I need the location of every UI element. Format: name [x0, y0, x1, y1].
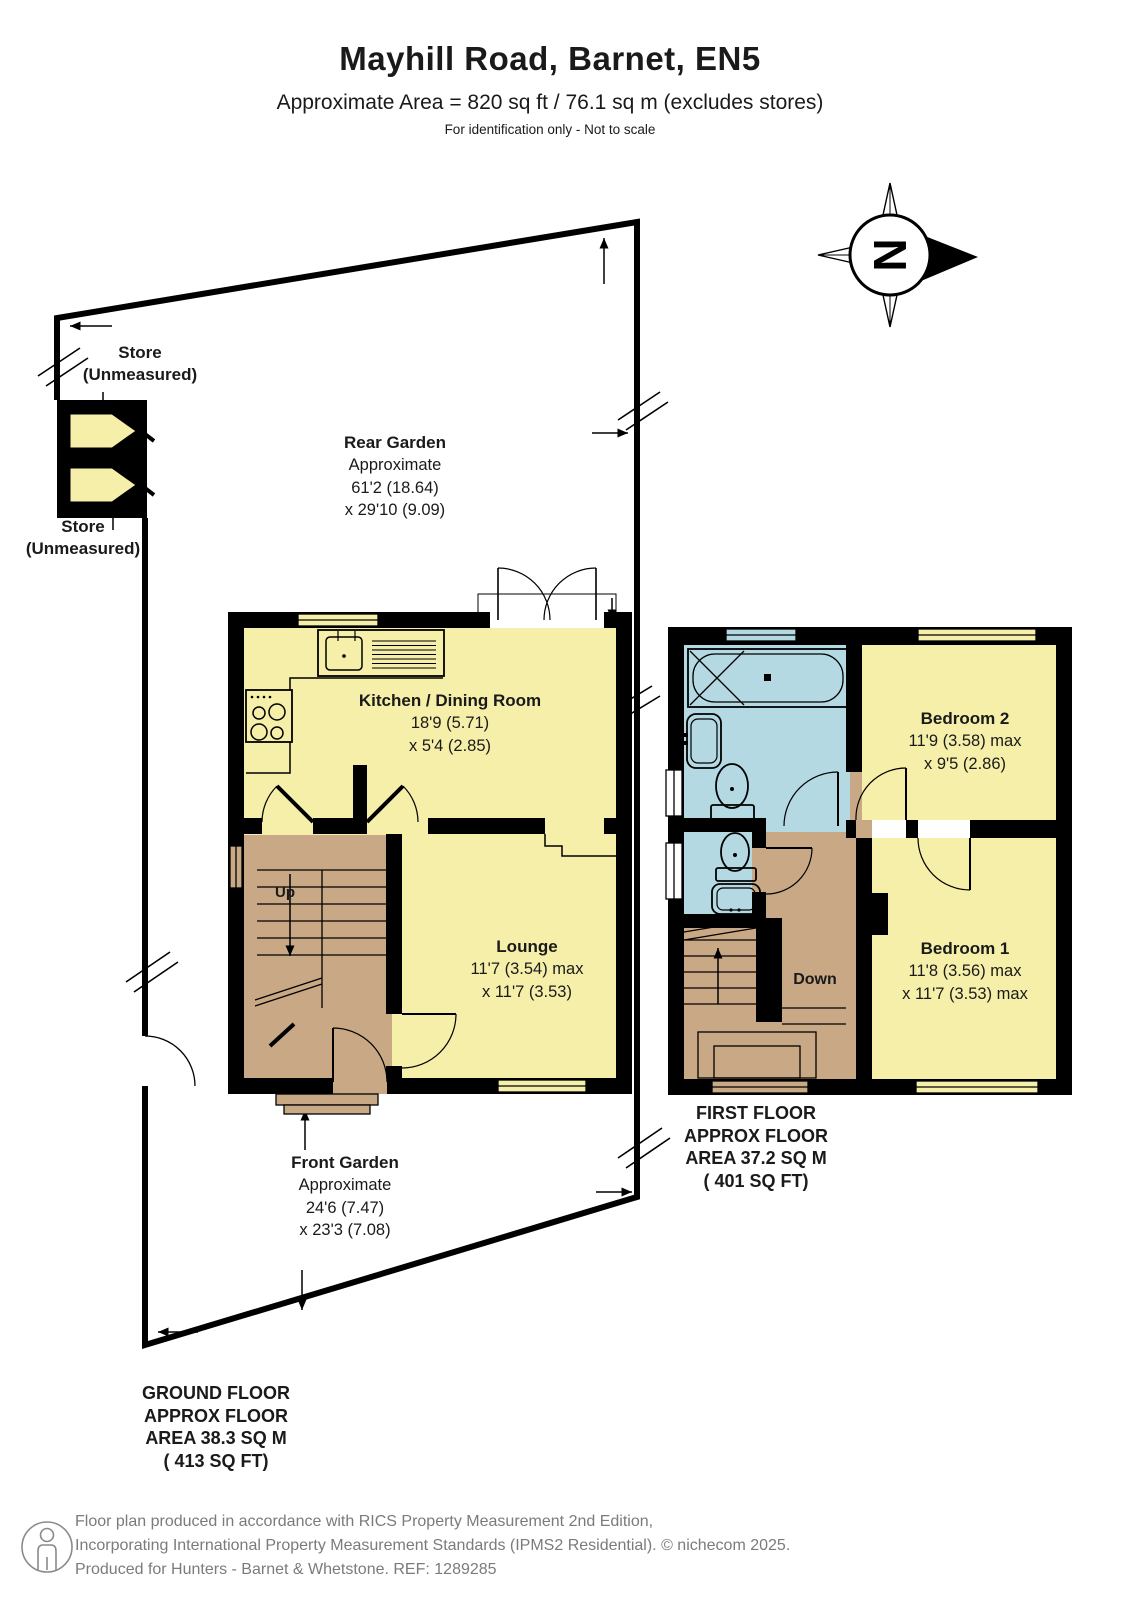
ground-floor-plan	[228, 568, 632, 1114]
compass-north-icon: N	[818, 183, 978, 327]
footer-line-3: Produced for Hunters - Barnet & Whetston…	[75, 1558, 790, 1582]
floorplan-drawing: N	[0, 0, 1131, 1599]
store-outbuildings	[57, 400, 154, 518]
person-logo-icon	[22, 1522, 72, 1572]
up-label: Up	[262, 884, 308, 901]
first-floor-plan	[666, 627, 1072, 1095]
kitchen-label: Kitchen / Dining Room 18'9 (5.71) x 5'4 …	[330, 690, 570, 757]
scale-note: For identification only - Not to scale	[0, 122, 1100, 137]
store-top-label: Store (Unmeasured)	[60, 342, 220, 386]
rear-garden-label: Rear Garden Approximate 61'2 (18.64) x 2…	[295, 432, 495, 521]
front-garden-label: Front Garden Approximate 24'6 (7.47) x 2…	[245, 1152, 445, 1241]
hob-icon	[246, 690, 292, 742]
lounge-label: Lounge 11'7 (3.54) max x 11'7 (3.53)	[427, 936, 627, 1003]
down-label: Down	[787, 971, 843, 989]
first-floor-area-label: FIRST FLOOR APPROX FLOOR AREA 37.2 SQ M …	[656, 1102, 856, 1192]
footer-line-2: Incorporating International Property Mea…	[75, 1534, 790, 1558]
ground-floor-area-label: GROUND FLOOR APPROX FLOOR AREA 38.3 SQ M…	[116, 1382, 316, 1472]
bedroom1-label: Bedroom 1 11'8 (3.56) max x 11'7 (3.53) …	[865, 938, 1065, 1005]
footer-disclaimer: Floor plan produced in accordance with R…	[75, 1510, 790, 1582]
store-bottom-label: Store (Unmeasured)	[2, 516, 164, 560]
compass-n-letter: N	[864, 238, 916, 271]
floorplan-page: Mayhill Road, Barnet, EN5 Approximate Ar…	[0, 0, 1131, 1599]
page-title: Mayhill Road, Barnet, EN5	[0, 40, 1100, 78]
area-subtitle: Approximate Area = 820 sq ft / 76.1 sq m…	[0, 91, 1100, 115]
footer-line-1: Floor plan produced in accordance with R…	[75, 1510, 790, 1534]
bedroom2-label: Bedroom 2 11'9 (3.58) max x 9'5 (2.86)	[865, 708, 1065, 775]
